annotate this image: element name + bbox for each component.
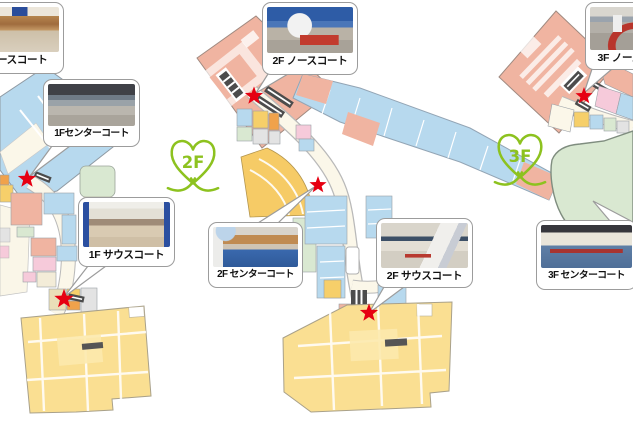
callout-label: 3F センターコート xyxy=(541,268,632,283)
callout-2f-south-court[interactable]: 2F サウスコート xyxy=(376,218,473,288)
floor-guide-image: 1F ノースコート 1Fセンターコート 1F サウスコート 2F ノースコート … xyxy=(0,0,633,422)
floor-logo-3f: 3F xyxy=(492,127,548,189)
callout-1f-south-court[interactable]: 1F サウスコート xyxy=(78,197,175,267)
callout-label: 1F ノースコート xyxy=(0,52,59,68)
1f-green-area xyxy=(80,166,115,197)
callout-1f-center-court[interactable]: 1Fセンターコート xyxy=(43,79,140,147)
callout-label: 2F ノースコート xyxy=(267,53,353,69)
callout-2f-north-court[interactable]: 2F ノースコート xyxy=(262,2,358,75)
photo-1f-center-court xyxy=(48,84,135,126)
callout-2f-center-court[interactable]: 2F センターコート xyxy=(208,222,303,288)
photo-3f-north-court xyxy=(590,7,633,50)
callout-label: 3F ノースコート xyxy=(590,50,633,66)
callout-3f-center-court[interactable]: 3F センターコート xyxy=(536,220,633,290)
photo-2f-south-court xyxy=(381,223,468,268)
photo-1f-north-court xyxy=(0,7,59,52)
callout-label: 2F センターコート xyxy=(213,267,298,282)
photo-2f-north-court xyxy=(267,7,353,53)
callout-3f-north-court[interactable]: 3F ノースコート xyxy=(585,2,633,70)
photo-3f-center-court xyxy=(541,225,632,268)
callout-label: 2F サウスコート xyxy=(381,268,468,284)
callout-1f-north-court[interactable]: 1F ノースコート xyxy=(0,2,64,74)
floor-logo-2f: 2F xyxy=(165,133,221,195)
photo-2f-center-court xyxy=(213,227,298,267)
callout-label: 1F サウスコート xyxy=(83,247,170,263)
photo-1f-south-court xyxy=(83,202,170,247)
floor-logo-2f-label: 2F xyxy=(182,153,205,172)
callout-label: 1Fセンターコート xyxy=(48,126,135,141)
floor-logo-3f-label: 3F xyxy=(509,147,532,166)
